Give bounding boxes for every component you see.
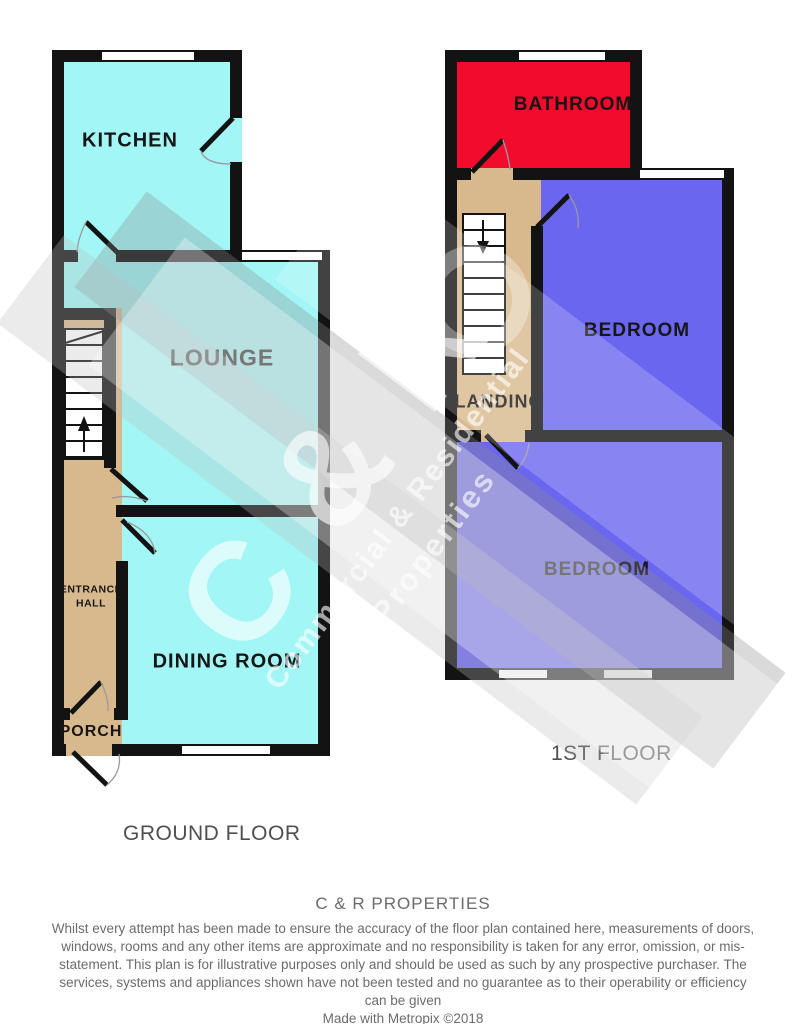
front-door-leaf [73, 752, 107, 785]
first-floor-label: 1ST FLOOR [551, 742, 672, 766]
dining-room-label: DINING ROOM [153, 651, 302, 674]
kitchen-lounge-door-arc [77, 222, 86, 252]
footer-credit: Made with Metropix ©2018 [0, 1011, 806, 1024]
kitchen-lounge-door-leaf [86, 222, 119, 254]
bathroom-door-leaf [472, 140, 503, 172]
kitchen-side-door-arc [201, 151, 231, 164]
bedroom-rear-door-leaf [486, 435, 518, 468]
hall-dining-door-leaf [122, 520, 155, 553]
bedroom-front-door-arc [569, 195, 578, 228]
porch-label: PORCH [60, 723, 123, 741]
kitchen-label: KITCHEN [82, 130, 178, 153]
footer-company-name: C & R PROPERTIES [0, 894, 806, 914]
kitchen-side-door-leaf [201, 118, 233, 151]
front-door-arc [107, 754, 120, 785]
lounge-label: LOUNGE [170, 345, 274, 372]
bedroom-front-door-leaf [537, 195, 569, 227]
bathroom-label: BATHROOM [514, 94, 632, 116]
ground-floor-label: GROUND FLOOR [123, 822, 301, 846]
bedroom-front-label: BEDROOM [584, 320, 690, 342]
hall-porch-door-leaf [71, 682, 101, 713]
entrance-hall-label: ENTRANCE HALL [55, 583, 127, 610]
stairs-break-line [62, 331, 104, 344]
stairs-up-arrow-head [78, 416, 90, 431]
bedroom-rear-door-arc [518, 443, 529, 468]
bathroom-door-arc [503, 140, 510, 170]
bedroom-rear-label: BEDROOM [544, 559, 650, 581]
landing-label: LANDING [455, 392, 544, 413]
hall-porch-door-arc [101, 682, 108, 711]
stairs-down-arrow-head [477, 241, 489, 254]
floorplan-canvas: KITCHEN LOUNGE ENTRANCE HALL DINING ROOM… [0, 0, 806, 1024]
footer: C & R PROPERTIES Whilst every attempt ha… [0, 894, 806, 1024]
footer-disclaimer: Whilst every attempt has been made to en… [51, 920, 755, 1010]
doors-and-stairs-overlay [0, 0, 806, 1024]
